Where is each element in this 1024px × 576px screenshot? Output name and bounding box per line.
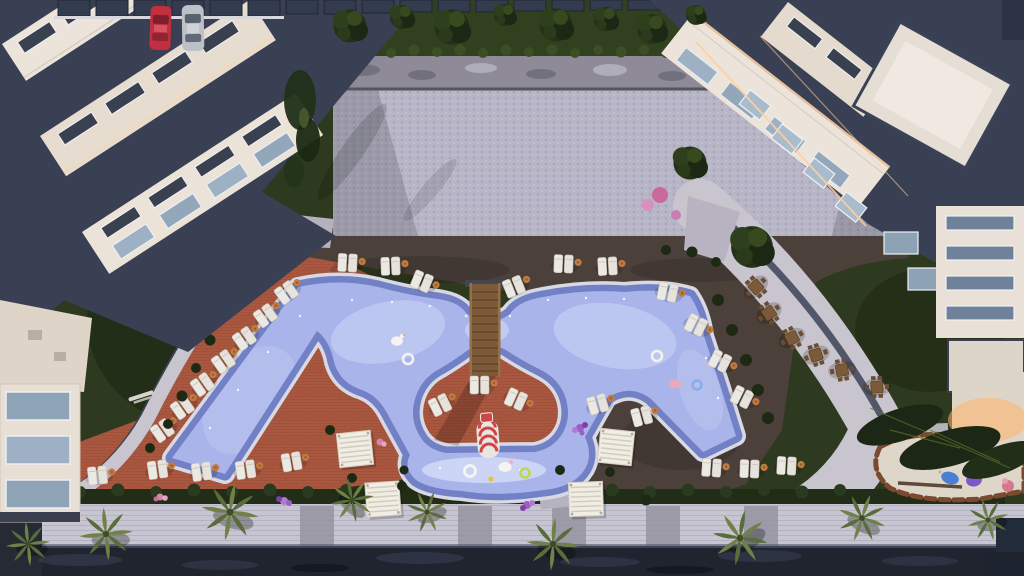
roof-vent [54,352,66,361]
beach-ball [488,476,493,481]
silver-car [182,5,205,51]
glass-balcony [6,392,70,420]
red-car [149,6,172,51]
glass-balcony [6,480,70,508]
roof-vent [28,330,42,340]
pink-float [669,380,682,389]
right-building-column [936,206,1024,392]
left-bottom-building [0,384,80,522]
glass-balcony [6,436,70,464]
courtyard-scene: Aerial render of residential resort cour… [0,0,1024,576]
blossom-tree [652,187,668,203]
aerial-render: Aerial render of residential resort cour… [0,0,1024,576]
